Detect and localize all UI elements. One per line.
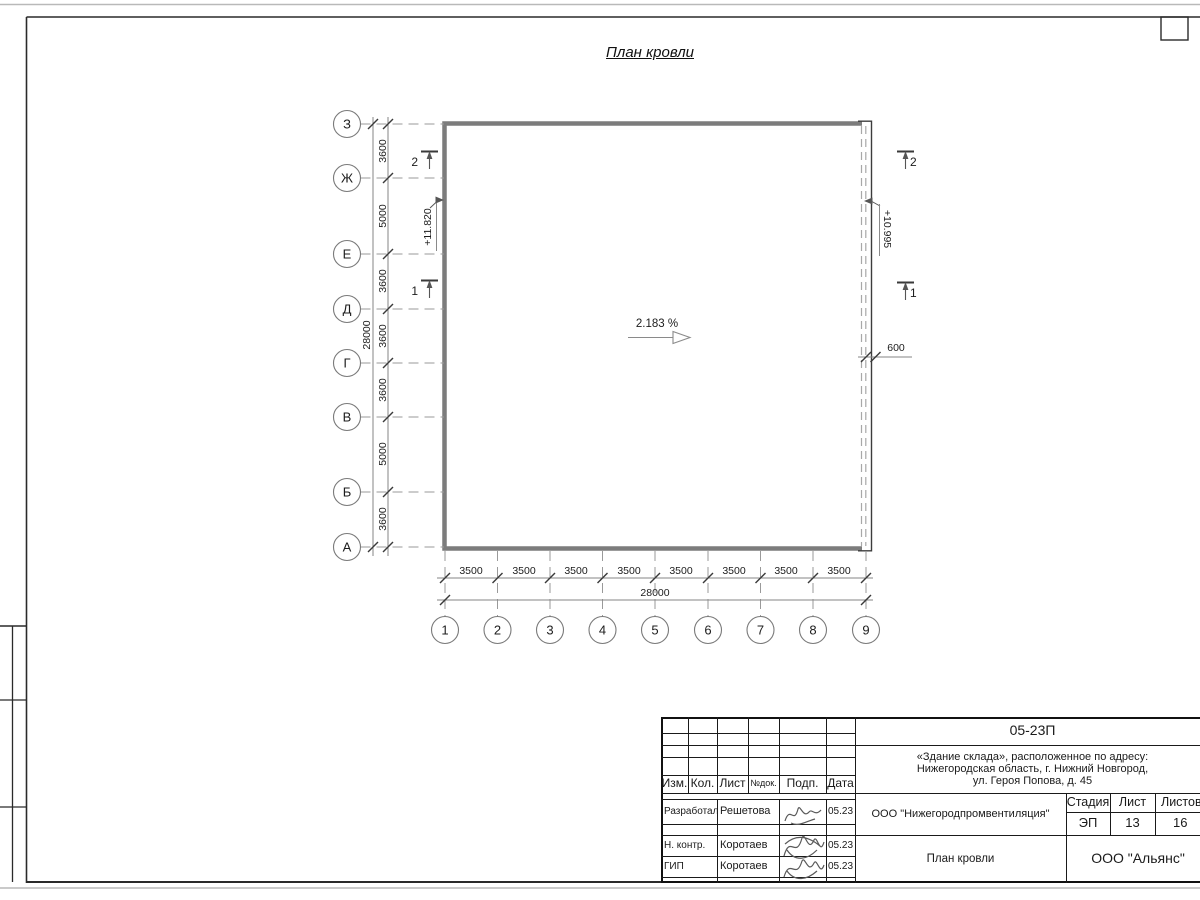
tb-object-address: «Здание склада», расположенное по адресу…: [855, 745, 1200, 793]
section-marks: 2 2 1 1: [411, 151, 917, 300]
dim-label: 3500: [669, 565, 693, 577]
dim-label: 3500: [722, 565, 746, 577]
dim-label: 3500: [774, 565, 798, 577]
tb-organization: ООО "Альянс": [1066, 835, 1200, 883]
col-dimension-labels: 3500 3500 3500 3500 3500 3500 3500 3500 …: [459, 342, 905, 599]
dim-total-label: 28000: [640, 587, 669, 599]
tb-line: [661, 745, 855, 746]
tb-sheet-label: Лист: [1110, 793, 1155, 812]
axis-label: 1: [441, 623, 448, 638]
axis-label: 3: [546, 623, 553, 638]
tb-date: 05.23: [826, 856, 855, 877]
tb-header-podp: Подп.: [779, 775, 826, 793]
tb-name-korotaev: Коротаев: [717, 856, 782, 877]
tb-line: [661, 793, 855, 794]
tb-name-korotaev: Коротаев: [717, 835, 782, 856]
elevation-mark-left: +11.820: [422, 197, 444, 252]
tb-header-izm: Изм.: [661, 775, 688, 793]
axis-label: 2: [494, 623, 501, 638]
title-block: Изм. Кол. Лист №док. Подп. Дата Разработ…: [661, 717, 1200, 883]
axis-label: 8: [809, 623, 816, 638]
tb-stage-label: Стадия: [1066, 793, 1110, 812]
axis-label: 5: [651, 623, 658, 638]
tb-sheets-value: 16: [1155, 812, 1200, 835]
section-mark-2-right: 2: [897, 151, 917, 169]
axis-label: Г: [343, 356, 350, 371]
dim-label: 3600: [377, 269, 389, 293]
col-axis-lines: [445, 551, 866, 617]
tb-header-kol: Кол.: [688, 775, 717, 793]
tb-date: 05.23: [826, 835, 855, 856]
drawing-sheet: 3600 5000 3600 3600 3600 5000 3600 28000…: [0, 0, 1200, 900]
axis-label: 4: [599, 623, 606, 638]
slope-arrow-head: [673, 332, 690, 344]
signature-reshetova: [781, 801, 825, 832]
axis-label: 6: [704, 623, 711, 638]
roof-outline: [445, 121, 872, 551]
corner-doc-box: [1161, 17, 1188, 40]
roof-edge-thick: [445, 124, 863, 549]
tb-header-ndok: №док.: [748, 775, 779, 793]
tb-name-reshetova: Решетова: [717, 799, 782, 824]
tb-role-gip: ГИП: [661, 856, 720, 877]
tb-header-list: Лист: [717, 775, 748, 793]
section-mark-1-left: 1: [411, 280, 438, 298]
elevation-label: +10.995: [881, 210, 893, 248]
axis-label: З: [343, 117, 351, 132]
dim-label: 3500: [459, 565, 483, 577]
row-dimension-labels: 3600 5000 3600 3600 3600 5000 3600 28000: [361, 139, 389, 531]
dim-600-label: 600: [887, 342, 905, 354]
dim-label: 3600: [377, 507, 389, 531]
slope-label: 2.183 %: [636, 318, 678, 330]
signature-korotaev: [780, 855, 826, 886]
tb-header-data: Дата: [826, 775, 855, 793]
row-axis-bubbles: З Ж Е Д Г В Б А: [334, 111, 361, 561]
tb-address-line3: ул. Героя Попова, д. 45: [973, 775, 1092, 787]
tb-address-line1: «Здание склада», расположенное по адресу…: [917, 751, 1148, 763]
tb-sheet-value: 13: [1110, 812, 1155, 835]
dim-label: 3600: [377, 324, 389, 348]
dim-label: 3600: [377, 378, 389, 402]
axis-label: 7: [757, 623, 764, 638]
axis-label: 9: [862, 623, 869, 638]
axis-label: Б: [343, 485, 352, 500]
slope-annotation: 2.183 %: [628, 318, 690, 344]
dim-label: 3500: [564, 565, 588, 577]
tb-line: [661, 757, 855, 758]
dim-label: 3500: [827, 565, 851, 577]
roof-edge-right: [858, 121, 872, 551]
axis-label: Е: [343, 247, 352, 262]
tb-sheets-label: Листов: [1155, 793, 1200, 812]
elevation-mark-right: +10.995: [864, 198, 893, 257]
section-label: 1: [411, 284, 418, 298]
dimension-lines: [373, 117, 912, 600]
axis-label: Ж: [341, 171, 353, 186]
dim-label: 5000: [377, 442, 389, 466]
tb-doc-title: План кровли: [855, 835, 1066, 883]
tb-address-line2: Нижегородская область, г. Нижний Новгоро…: [917, 763, 1148, 775]
axis-label: Д: [343, 302, 352, 317]
section-mark-2-left: 2: [411, 151, 438, 169]
section-label: 2: [910, 155, 917, 169]
page-title: План кровли: [560, 44, 740, 61]
elevation-label: +11.820: [422, 208, 434, 246]
tb-stage-value: ЭП: [1066, 812, 1110, 835]
tb-role-razrabotal: Разработал: [661, 799, 720, 824]
axis-label: А: [343, 540, 352, 555]
tb-company: ООО "Нижегородпромвентиляция": [855, 793, 1066, 835]
tb-document-code: 05-23П: [855, 717, 1200, 745]
dim-label: 3600: [377, 139, 389, 163]
dim-label: 3500: [512, 565, 536, 577]
dim-label: 5000: [377, 204, 389, 228]
axis-label: В: [343, 410, 352, 425]
tb-role-nkontr: Н. контр.: [661, 835, 720, 856]
section-label: 2: [411, 155, 418, 169]
section-label: 1: [910, 286, 917, 300]
tb-line: [661, 733, 855, 734]
section-mark-1-right: 1: [897, 282, 917, 300]
tb-date: 05.23: [826, 799, 855, 824]
dim-total-label: 28000: [361, 320, 373, 349]
dim-label: 3500: [617, 565, 641, 577]
col-axis-bubbles: 1 2 3 4 5 6 7 8 9: [432, 617, 880, 644]
